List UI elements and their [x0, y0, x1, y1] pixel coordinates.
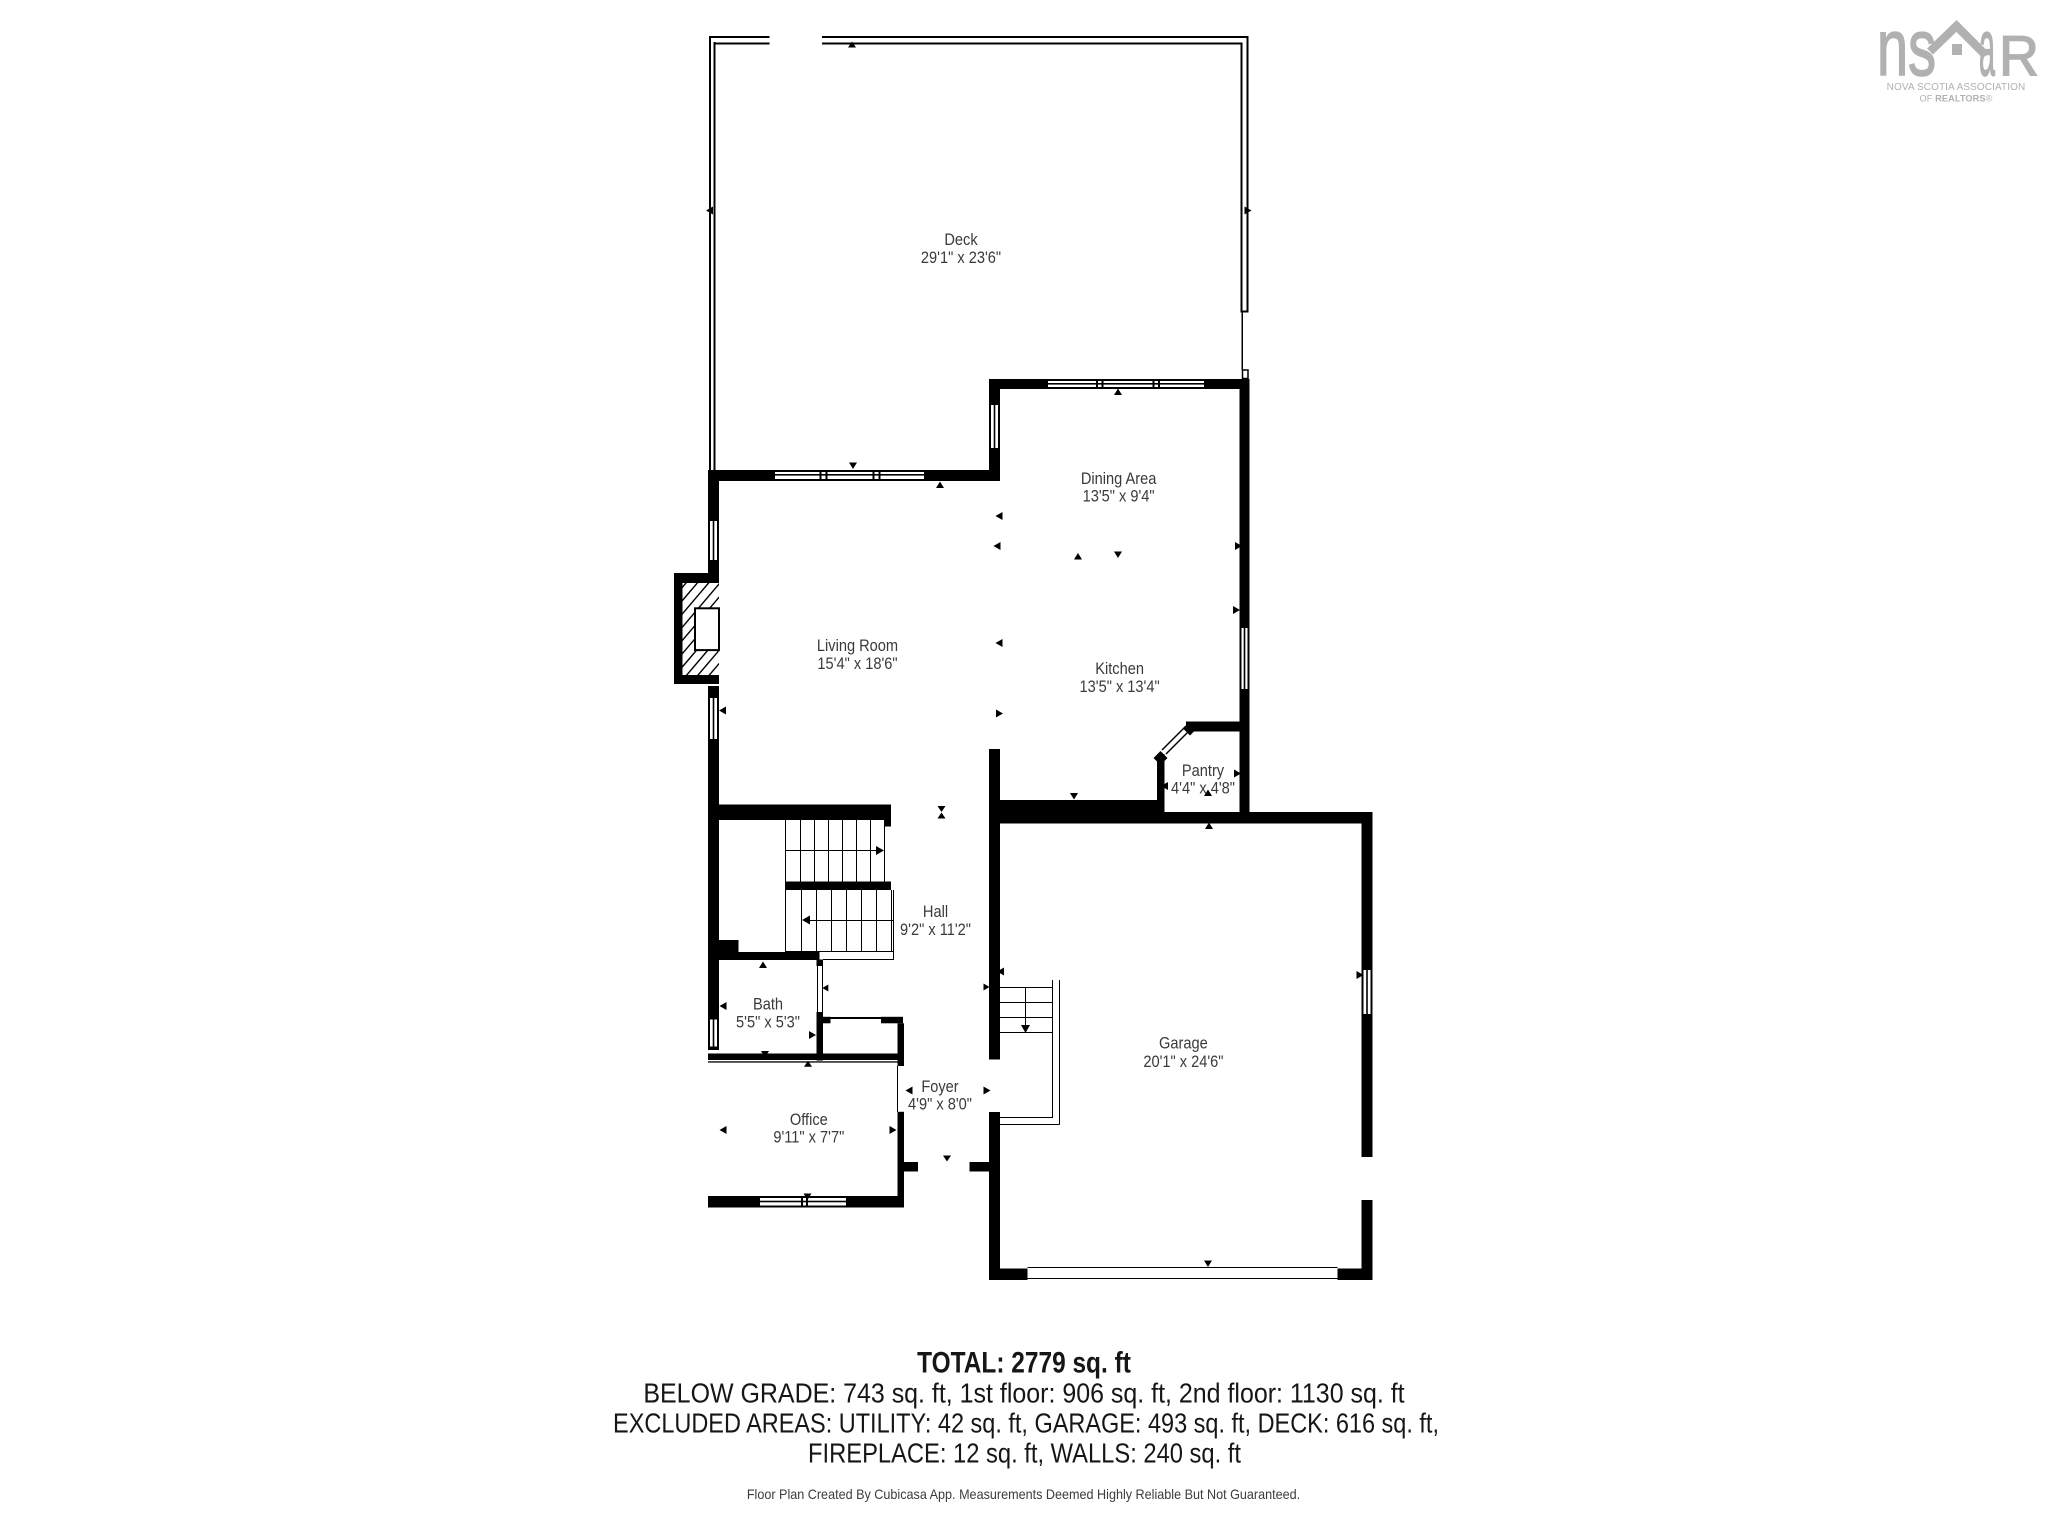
svg-text:NOVA SCOTIA ASSOCIATION: NOVA SCOTIA ASSOCIATION: [1887, 82, 2026, 93]
svg-text:9'2" x 11'2": 9'2" x 11'2": [900, 921, 971, 939]
svg-text:13'5" x 13'4": 13'5" x 13'4": [1080, 678, 1160, 696]
svg-text:Foyer: Foyer: [921, 1078, 959, 1096]
svg-text:OF REALTORS®: OF REALTORS®: [1920, 94, 1993, 104]
svg-text:4'4" x 4'8": 4'4" x 4'8": [1171, 780, 1235, 798]
svg-text:20'1" x 24'6": 20'1" x 24'6": [1143, 1053, 1223, 1071]
svg-text:5'5" x 5'3": 5'5" x 5'3": [736, 1013, 800, 1031]
svg-text:Hall: Hall: [923, 903, 948, 921]
svg-text:13'5" x 9'4": 13'5" x 9'4": [1083, 488, 1155, 506]
svg-text:Living Room: Living Room: [817, 637, 898, 655]
svg-text:Pantry: Pantry: [1182, 762, 1224, 780]
svg-text:EXCLUDED AREAS: UTILITY: 42 sq: EXCLUDED AREAS: UTILITY: 42 sq. ft, GARA…: [613, 1409, 1439, 1439]
svg-text:FIREPLACE: 12 sq. ft, WALLS: 2: FIREPLACE: 12 sq. ft, WALLS: 240 sq. ft: [808, 1439, 1242, 1469]
svg-text:Floor Plan Created By Cubicasa: Floor Plan Created By Cubicasa App. Meas…: [747, 1487, 1300, 1502]
svg-text:Office: Office: [790, 1111, 828, 1129]
svg-text:Deck: Deck: [944, 231, 977, 249]
svg-text:Kitchen: Kitchen: [1095, 660, 1144, 678]
svg-text:Dining Area: Dining Area: [1081, 470, 1157, 488]
svg-text:TOTAL: 2779 sq. ft: TOTAL: 2779 sq. ft: [917, 1345, 1131, 1379]
svg-text:Garage: Garage: [1159, 1035, 1208, 1053]
svg-text:9'11" x 7'7": 9'11" x 7'7": [773, 1129, 844, 1147]
svg-text:4'9" x 8'0": 4'9" x 8'0": [908, 1096, 972, 1114]
svg-text:R: R: [1999, 24, 2039, 88]
svg-text:ns: ns: [1877, 3, 1936, 92]
svg-text:29'1" x 23'6": 29'1" x 23'6": [921, 249, 1001, 267]
svg-text:Bath: Bath: [753, 996, 783, 1014]
svg-text:BELOW GRADE: 743 sq. ft, 1st f: BELOW GRADE: 743 sq. ft, 1st floor: 906 …: [643, 1377, 1405, 1409]
svg-text:15'4" x 18'6": 15'4" x 18'6": [817, 655, 897, 673]
